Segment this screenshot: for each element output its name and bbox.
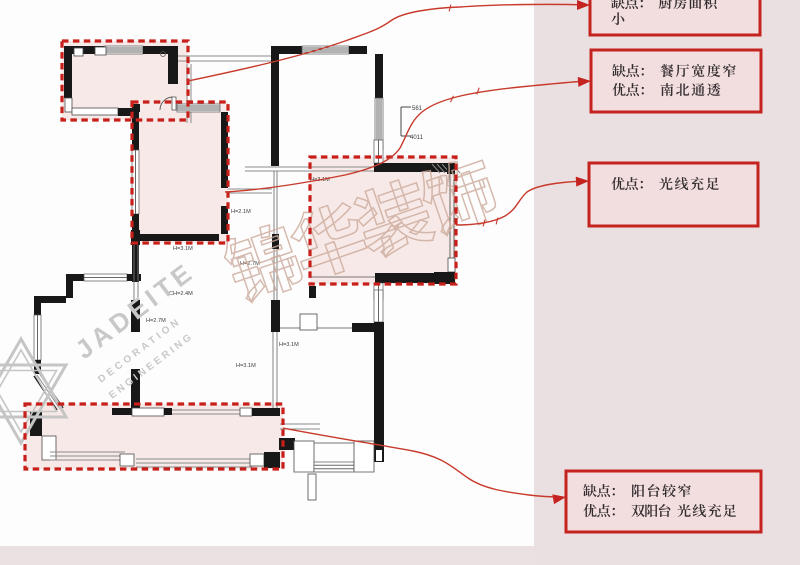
svg-text:H=3.1M: H=3.1M [236,363,256,369]
svg-text:H=3.1M: H=3.1M [279,342,299,348]
svg-text:4011: 4011 [410,135,424,141]
svg-text:H=2.1M: H=2.1M [231,209,251,215]
svg-text:H=2.7M: H=2.7M [146,318,166,324]
svg-text:561: 561 [412,106,423,112]
svg-text:H=3.1M: H=3.1M [173,246,193,252]
